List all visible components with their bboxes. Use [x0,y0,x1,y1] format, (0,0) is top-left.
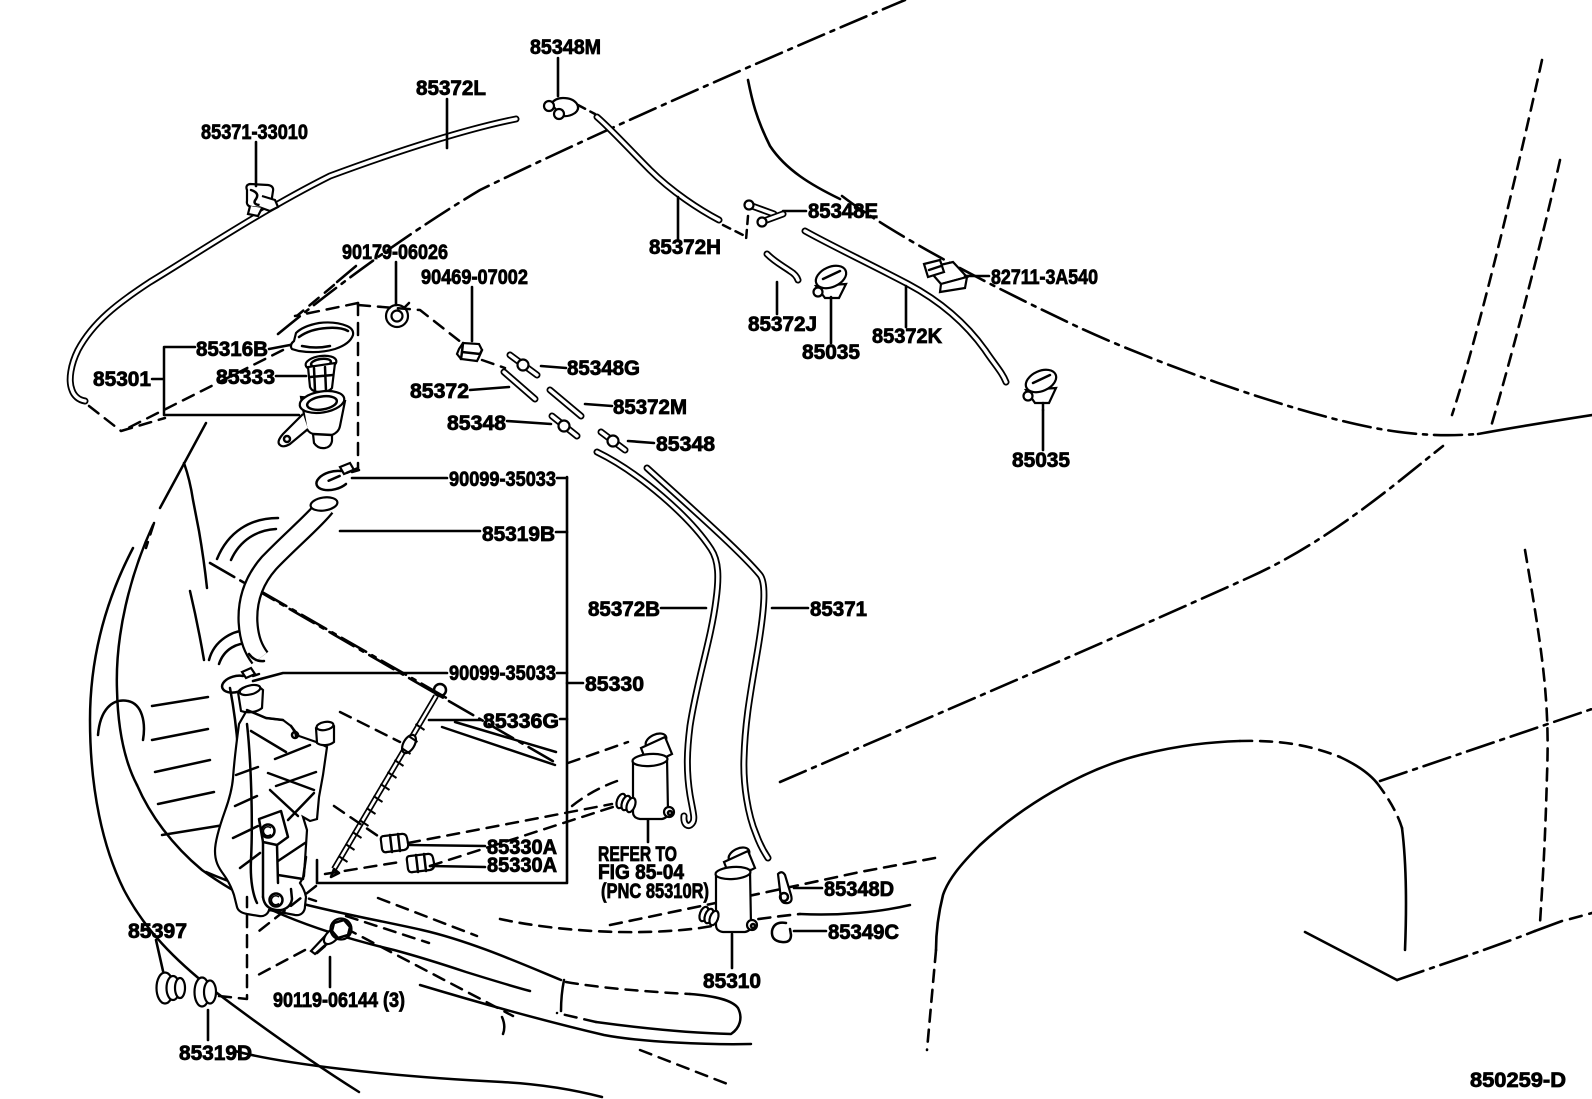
svg-text:85035: 85035 [802,341,860,364]
svg-text:85348M: 85348M [530,36,601,59]
svg-text:90099-35033: 90099-35033 [449,468,556,491]
svg-text:85035: 85035 [1012,449,1070,472]
svg-text:85372B: 85372B [588,598,660,621]
svg-text:90099-35033: 90099-35033 [449,662,556,685]
svg-text:90469-07002: 90469-07002 [421,266,528,289]
svg-text:85348: 85348 [656,433,715,456]
svg-text:850259-D: 850259-D [1470,1069,1566,1092]
svg-text:85372M: 85372M [613,396,687,419]
svg-text:85372L: 85372L [416,77,486,100]
svg-text:85348E: 85348E [808,200,878,223]
svg-text:85336G: 85336G [483,710,559,733]
svg-text:85348: 85348 [447,412,506,435]
svg-text:85372H: 85372H [649,236,721,259]
svg-text:85372: 85372 [410,380,469,403]
svg-text:85397: 85397 [128,920,187,943]
svg-text:85349C: 85349C [828,921,899,944]
svg-text:85330A: 85330A [487,854,557,877]
svg-text:85319D: 85319D [179,1042,252,1065]
svg-text:85371-33010: 85371-33010 [201,121,308,144]
svg-text:85301: 85301 [93,368,151,391]
svg-text:90179-06026: 90179-06026 [342,241,448,264]
svg-text:85371: 85371 [810,598,867,621]
svg-text:85372K: 85372K [872,325,942,348]
svg-text:85310: 85310 [703,970,761,993]
svg-text:85348D: 85348D [824,878,894,901]
svg-text:(PNC 85310R): (PNC 85310R) [601,880,709,903]
svg-text:85319B: 85319B [482,523,555,546]
svg-text:85316B: 85316B [196,338,268,361]
svg-text:90119-06144 (3): 90119-06144 (3) [273,989,405,1012]
svg-text:85372J: 85372J [748,313,817,336]
svg-text:82711-3A540: 82711-3A540 [991,266,1098,289]
svg-text:85333: 85333 [216,366,275,389]
svg-text:85330: 85330 [585,673,644,696]
svg-text:85348G: 85348G [567,357,640,380]
